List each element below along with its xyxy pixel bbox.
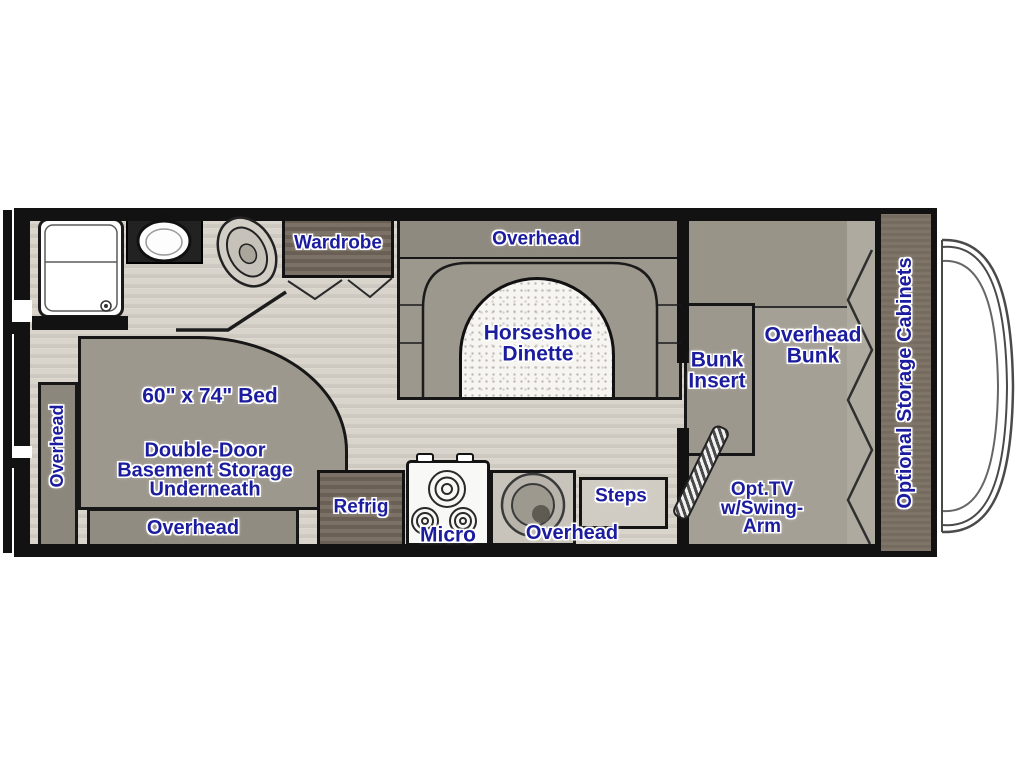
left-wall-stub-lower — [3, 458, 30, 468]
label-refrig: Refrig — [334, 499, 389, 518]
label-bunk-insert: Bunk Insert — [688, 350, 745, 391]
label-dinette-overhead: Overhead — [492, 231, 580, 250]
label-basement-storage: Double-Door Basement Storage Underneath — [117, 442, 293, 501]
left-window-lower — [12, 446, 32, 458]
label-bed-overhead-bottom: Overhead — [147, 519, 239, 539]
label-kitchen-overhead: Overhead — [526, 524, 618, 544]
label-bed-size: 60" x 74" Bed — [142, 387, 278, 408]
top-wall — [14, 208, 937, 221]
label-wardrobe: Wardrobe — [294, 235, 382, 254]
label-micro: Micro — [420, 526, 476, 547]
bunk-fold-strip — [847, 216, 875, 544]
left-wall-stub-upper — [3, 322, 30, 334]
bathroom-counter — [126, 214, 203, 264]
label-horseshoe-dinette: Horseshoe Dinette — [484, 323, 593, 364]
shower-wall — [32, 316, 128, 330]
rear-bumper — [3, 210, 12, 553]
stove-handle-left — [416, 453, 434, 463]
shower — [38, 218, 124, 318]
label-optional-storage: Optional Storage Cabinets — [896, 257, 916, 508]
label-overhead-bunk: Overhead Bunk — [765, 325, 862, 366]
rv-floorplan: Wardrobe Overhead Horseshoe Dinette Bunk… — [0, 0, 1024, 768]
label-bed-overhead-side: Overhead — [49, 404, 67, 487]
left-window-upper — [12, 300, 32, 322]
bunk-wall-upper — [677, 213, 689, 363]
left-wall — [14, 208, 30, 557]
label-opt-tv: Opt.TV w/Swing- Arm — [721, 481, 803, 537]
stove-handle-right — [456, 453, 474, 463]
overhead-bunk-panel — [686, 216, 852, 308]
label-steps: Steps — [595, 488, 647, 507]
cab-windshield-icon — [942, 240, 1013, 532]
